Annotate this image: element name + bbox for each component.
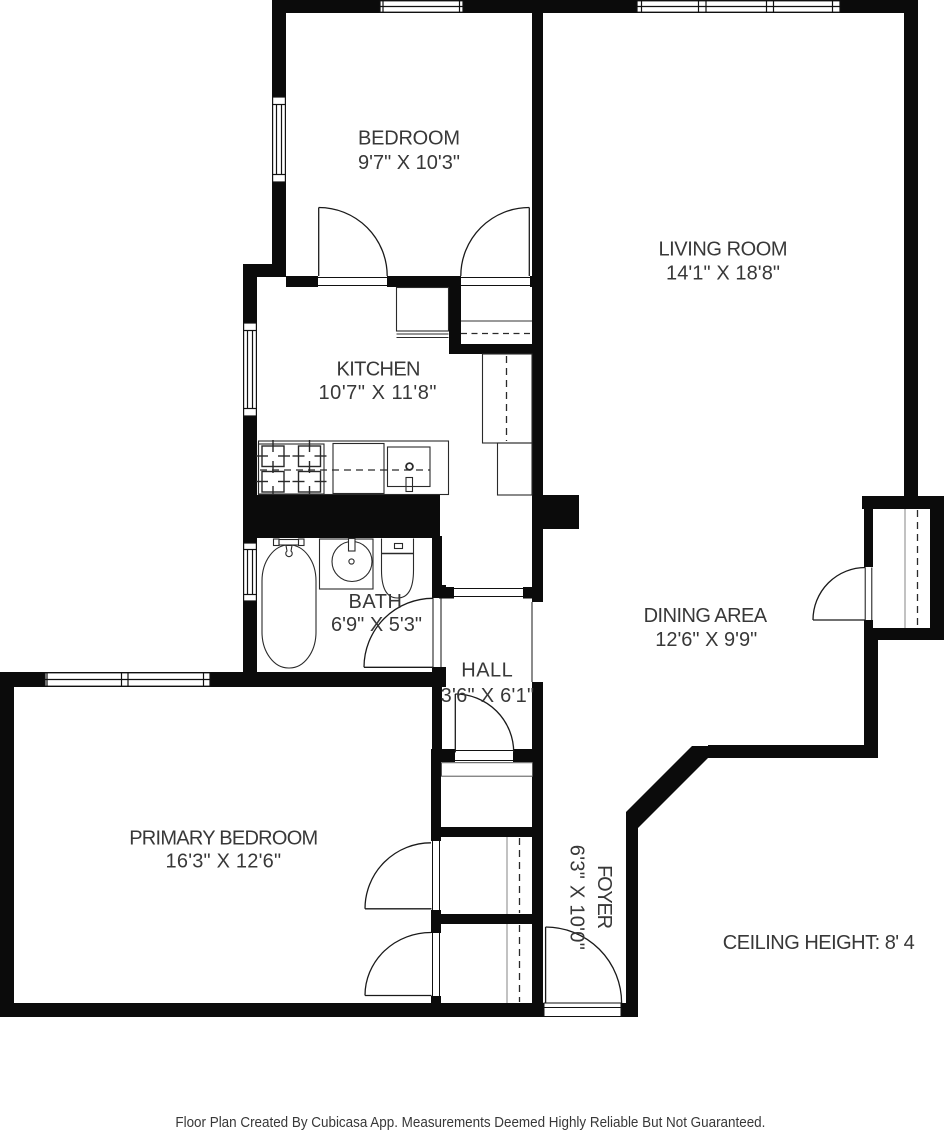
svg-text:16'3" X 12'6": 16'3" X 12'6" [166,851,281,873]
svg-text:BEDROOM: BEDROOM [358,128,460,150]
svg-text:9'7" X 10'3": 9'7" X 10'3" [358,152,460,174]
svg-text:6'9" X 5'3": 6'9" X 5'3" [331,614,422,636]
svg-text:BATH: BATH [348,591,402,613]
svg-text:12'6" X 9'9": 12'6" X 9'9" [655,629,757,651]
svg-text:FOYER: FOYER [593,865,615,929]
svg-text:HALL: HALL [461,660,513,682]
svg-text:Floor Plan Created By Cubicasa: Floor Plan Created By Cubicasa App. Meas… [175,1114,765,1131]
svg-text:DINING AREA: DINING AREA [644,605,768,627]
svg-text:PRIMARY BEDROOM: PRIMARY BEDROOM [129,828,318,850]
svg-text:CEILING HEIGHT: 8' 4: CEILING HEIGHT: 8' 4 [723,932,915,954]
svg-text:LIVING ROOM: LIVING ROOM [659,239,788,261]
svg-text:6'3" X 10'0": 6'3" X 10'0" [565,845,587,950]
svg-text:3'6" X 6'1": 3'6" X 6'1" [441,685,535,707]
svg-text:14'1" X 18'8": 14'1" X 18'8" [666,262,780,284]
svg-text:KITCHEN: KITCHEN [337,358,421,380]
svg-text:10'7" X 11'8": 10'7" X 11'8" [319,382,437,404]
